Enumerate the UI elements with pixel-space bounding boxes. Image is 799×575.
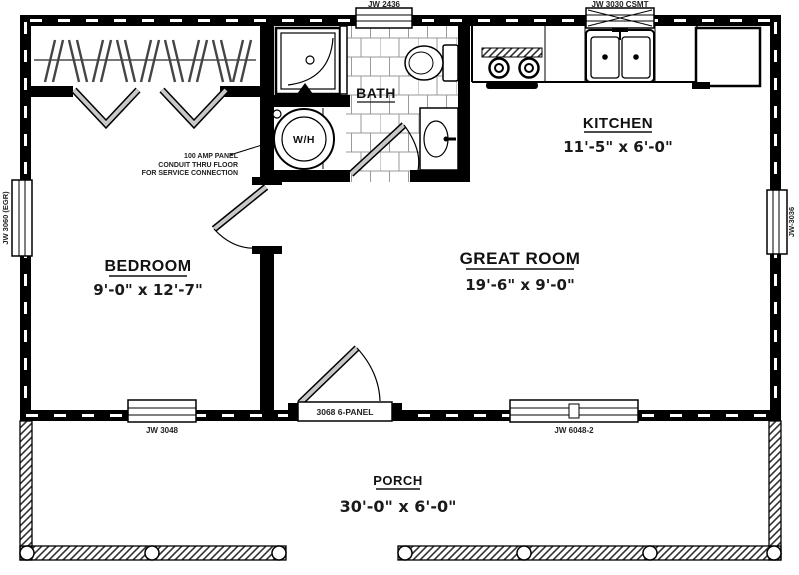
bedroom-label: BEDROOM [104,258,191,275]
great-room-dims: 19'-6" x 9'-0" [465,276,575,294]
toilet [405,45,458,81]
great-room-label: GREAT ROOM [460,249,581,268]
stove-handle [486,82,538,89]
kitchen-dims: 11'-5" x 6'-0" [563,138,673,156]
window-top-kitchen: JW 3030 CSMT [586,0,654,28]
porch-rail-bottom-right [398,546,781,560]
floor-plan-drawing: W/H [0,0,799,575]
window-label: JW 3048 [146,426,179,435]
window-label: JW 6048-2 [554,426,594,435]
entry-door-label-box: 3068 6-PANEL [298,402,392,421]
window-label: JW 2436 [368,0,401,9]
window-label: JW-3036 [787,207,796,237]
bath-label: BATH [356,85,396,101]
note-line-3: FOR SERVICE CONNECTION [142,170,238,177]
porch-rail-right [769,421,781,560]
kitchen-label: KITCHEN [583,115,653,132]
refrigerator-handle [692,82,710,89]
bedroom-dims: 9'-0" x 12'-7" [93,281,203,299]
porch-rail-left [20,421,32,560]
water-heater-valve [273,110,281,118]
kitchen-sink [586,26,654,82]
floor-plan-canvas: W/H [0,0,799,575]
porch-label: PORCH [373,473,422,488]
refrigerator [692,28,760,89]
window-left-bedroom: JW 3060 (EGR) [1,180,32,256]
bathroom-sink [420,108,458,170]
stove-backsplash [482,48,542,57]
porch-dims: 30'-0" x 6'-0" [340,497,457,516]
water-heater-label: W/H [293,134,315,146]
window-label: JW 3060 (EGR) [1,191,10,245]
shower [276,26,347,94]
water-heater: W/H [273,108,334,169]
entry-door-label: 3068 6-PANEL [316,407,373,417]
shower-partition-wall [340,26,347,94]
note-line-2: CONDUIT THRU FLOOR [158,162,238,169]
note-line-1: 100 AMP PANEL [184,153,239,160]
window-label: JW 3030 CSMT [592,0,649,9]
